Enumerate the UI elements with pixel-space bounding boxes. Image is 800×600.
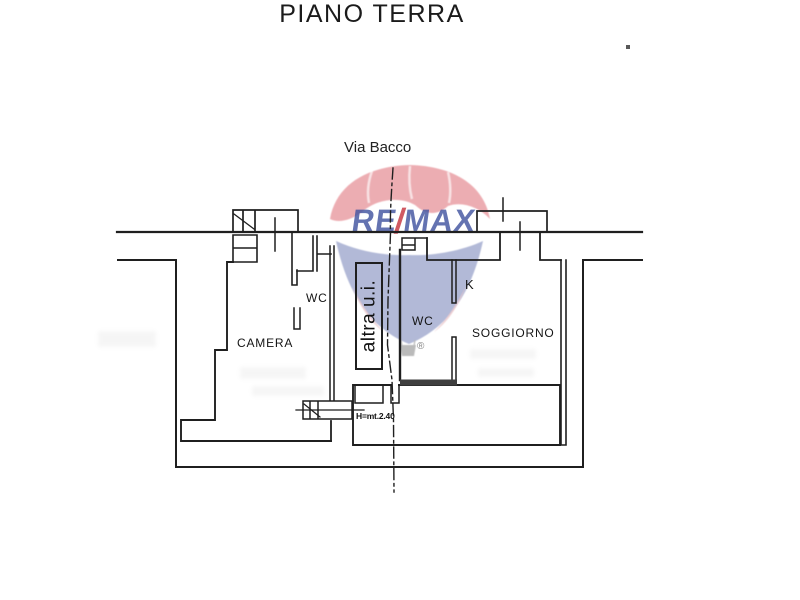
scan-smudge xyxy=(470,349,536,359)
room-label-altra-ui: altra u.i. xyxy=(358,280,380,353)
ceiling-height-annotation: H=mt.2.40 xyxy=(356,411,395,421)
room-label-wc-left: WC xyxy=(306,291,328,305)
room-label-wc-right: WC xyxy=(412,314,434,328)
scan-smudge xyxy=(252,386,324,396)
floor-plan-linework xyxy=(0,0,800,600)
floor-plan-page: RE/MAX ® xyxy=(0,0,800,600)
room-label-camera: CAMERA xyxy=(237,336,293,350)
page-title: PIANO TERRA xyxy=(0,0,744,29)
scan-smudge xyxy=(240,367,306,379)
street-name-label: Via Bacco xyxy=(344,139,411,156)
scan-speck xyxy=(626,45,630,49)
altra-ui-unit-box: altra u.i. xyxy=(355,262,383,370)
scan-smudge xyxy=(98,331,156,347)
room-label-kitchen: K xyxy=(465,277,474,292)
room-label-soggiorno: SOGGIORNO xyxy=(472,326,555,340)
scan-smudge xyxy=(478,368,534,377)
